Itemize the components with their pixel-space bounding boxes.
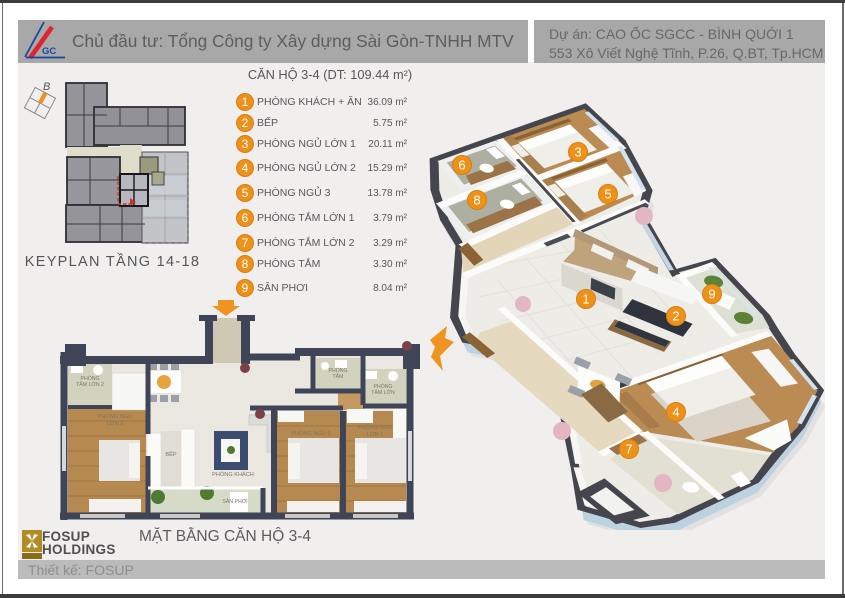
- svg-text:2: 2: [672, 309, 679, 324]
- svg-text:B: B: [43, 81, 50, 93]
- svg-text:GC: GC: [42, 46, 56, 57]
- svg-text:TẮM LỚN 2: TẮM LỚN 2: [76, 380, 104, 388]
- svg-text:1: 1: [582, 292, 589, 307]
- svg-text:PHÒNG KHÁCH: PHÒNG KHÁCH: [212, 471, 254, 478]
- svg-text:PHÒNG NGỦ: PHÒNG NGỦ: [358, 424, 393, 431]
- svg-text:PHÒNG: PHÒNG: [373, 383, 392, 390]
- svg-text:5: 5: [604, 187, 611, 202]
- svg-text:SÂN PHƠI: SÂN PHƠI: [222, 498, 247, 505]
- svg-text:TẮM: TẮM: [333, 372, 344, 380]
- svg-text:PHÒNG: PHÒNG: [80, 375, 99, 382]
- svg-text:6: 6: [458, 158, 465, 173]
- svg-text:PHÒNG NGỦ 3: PHÒNG NGỦ 3: [291, 430, 330, 437]
- svg-text:4: 4: [672, 405, 679, 420]
- svg-text:PHÒNG NGỦ: PHÒNG NGỦ: [98, 413, 133, 420]
- svg-text:8: 8: [473, 193, 480, 208]
- svg-text:BẾP: BẾP: [165, 451, 176, 458]
- svg-text:TẮM LỚN: TẮM LỚN: [371, 388, 395, 396]
- svg-text:7: 7: [625, 442, 632, 457]
- svg-text:LỚN 2: LỚN 2: [107, 420, 124, 427]
- svg-text:PHÒNG: PHÒNG: [328, 367, 347, 374]
- svg-text:9: 9: [708, 287, 715, 302]
- svg-text:3: 3: [574, 145, 581, 160]
- svg-text:LỚN 1: LỚN 1: [367, 431, 384, 438]
